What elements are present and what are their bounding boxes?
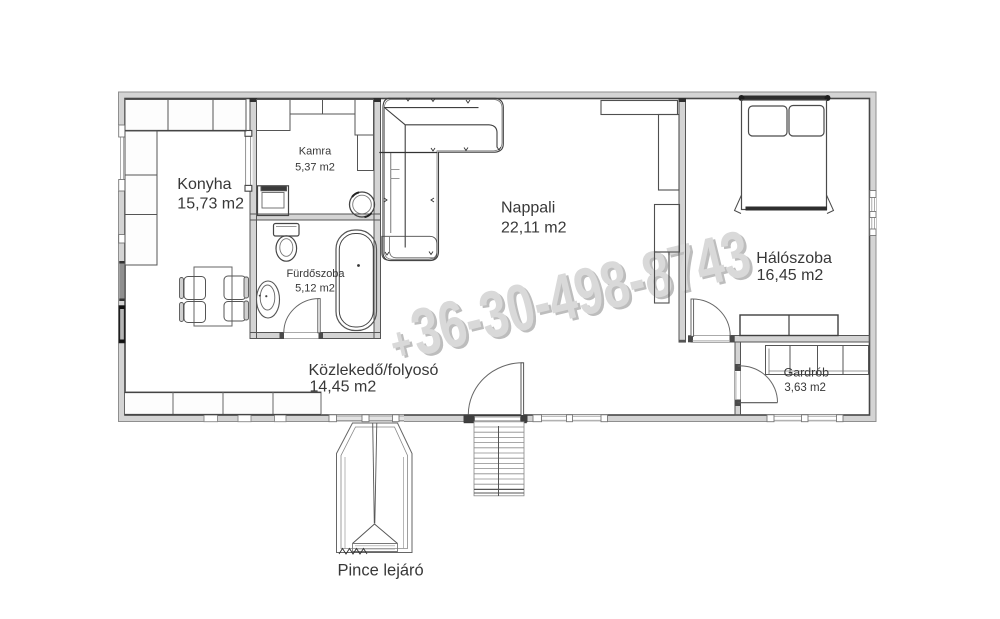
svg-text:5,12 m2: 5,12 m2 — [295, 283, 335, 295]
svg-text:22,11 m2: 22,11 m2 — [501, 220, 567, 237]
svg-text:Gardrób: Gardrób — [784, 366, 830, 380]
svg-text:5,37 m2: 5,37 m2 — [295, 161, 335, 173]
svg-text:Hálószoba: Hálószoba — [756, 250, 832, 267]
svg-text:14,45 m2: 14,45 m2 — [310, 378, 377, 395]
svg-text:Közlekedő/folyosó: Közlekedő/folyosó — [309, 362, 439, 379]
svg-text:Konyha: Konyha — [177, 176, 231, 193]
svg-text:Fürdőszoba: Fürdőszoba — [286, 268, 345, 280]
svg-text:3,63 m2: 3,63 m2 — [784, 382, 826, 394]
svg-text:Kamra: Kamra — [299, 146, 332, 158]
svg-text:Pince lejáró: Pince lejáró — [338, 562, 424, 580]
svg-text:15,73 m2: 15,73 m2 — [177, 196, 244, 213]
svg-text:16,45 m2: 16,45 m2 — [757, 267, 824, 284]
svg-text:Nappali: Nappali — [501, 199, 555, 216]
